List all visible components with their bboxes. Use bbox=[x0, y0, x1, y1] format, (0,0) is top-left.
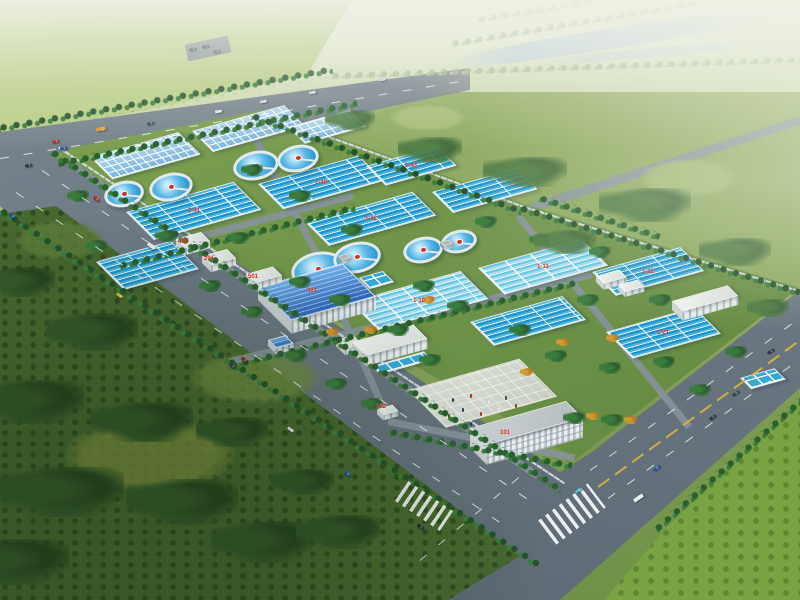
aerial-rendering: 3014012015011011021-401-411-421-431-101-… bbox=[0, 0, 800, 600]
vignette-shading bbox=[0, 0, 800, 600]
